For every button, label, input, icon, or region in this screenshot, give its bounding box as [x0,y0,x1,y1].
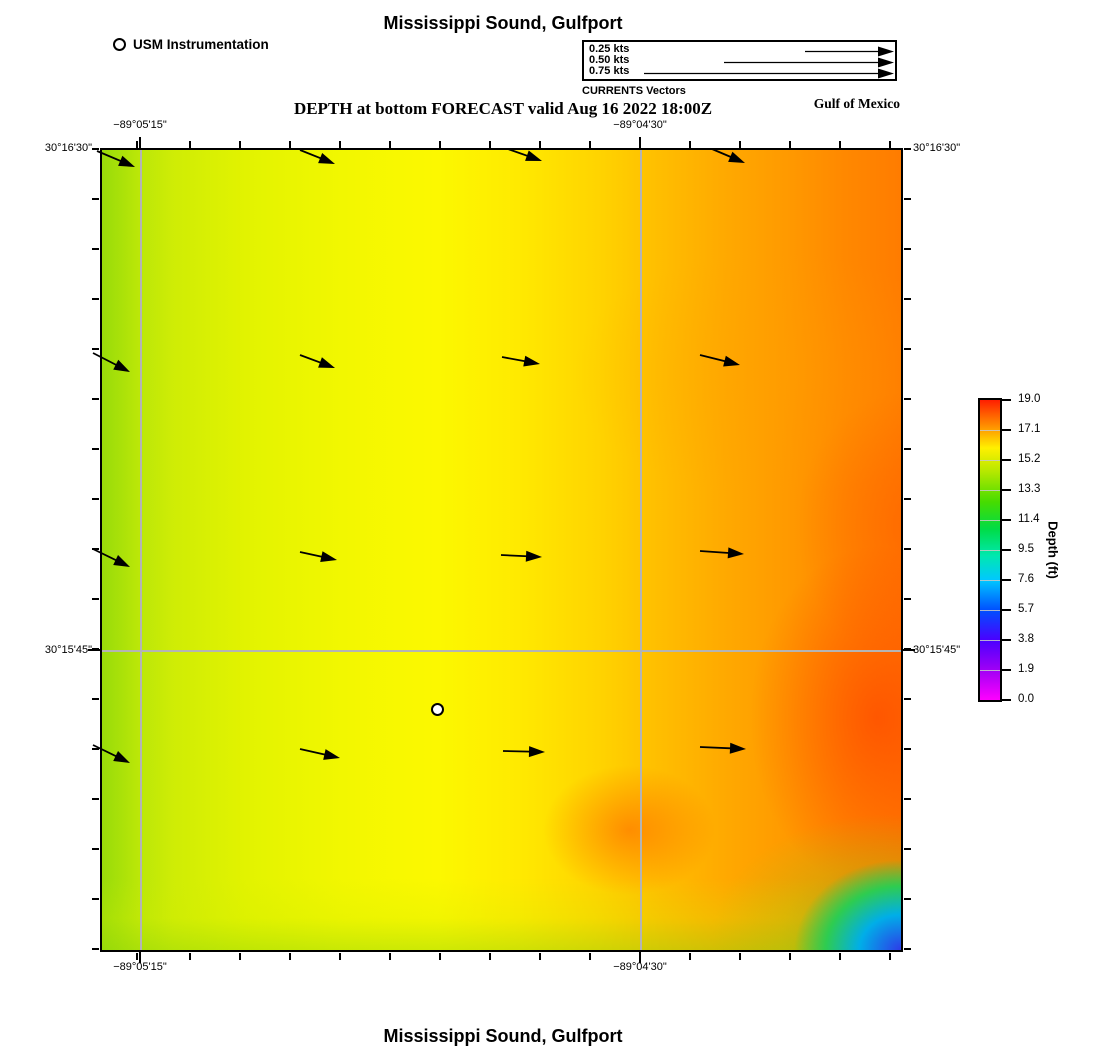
colorbar-tick [1002,639,1011,641]
colorbar-gridline [980,520,1000,521]
colorbar-tick-label: 13.3 [1018,483,1040,495]
y-axis-label-right-1: 30°16'30" [913,142,960,154]
region-label: Gulf of Mexico [760,96,900,112]
current-vector-arrow [728,152,745,163]
current-vector-arrow [730,743,746,754]
current-vector-arrow [526,551,542,562]
colorbar-tick [1002,399,1011,401]
colorbar-tick [1002,579,1011,581]
y-axis-label-right-2: 30°15'45" [913,644,960,656]
colorbar-tick-label: 3.8 [1018,633,1034,645]
current-vector-field [80,135,920,965]
vector-scale-arrow [878,58,894,68]
colorbar-gridline [980,490,1000,491]
colorbar-tick-label: 9.5 [1018,543,1034,555]
colorbar-tick-label: 5.7 [1018,603,1034,615]
x-axis-label-top-2: −89°04'30" [613,119,667,131]
vector-legend-entry-075: 0.75 kts [589,66,629,77]
colorbar-tick [1002,489,1011,491]
instrument-legend-label: USM Instrumentation [133,37,269,52]
colorbar-gridline [980,580,1000,581]
colorbar-tick-label: 17.1 [1018,423,1040,435]
current-vector-arrow [318,153,335,164]
colorbar-tick-label: 15.2 [1018,453,1040,465]
colorbar-tick-label: 1.9 [1018,663,1034,675]
colorbar-tick-label: 0.0 [1018,693,1034,705]
current-vector-arrow [118,156,135,167]
colorbar-tick [1002,609,1011,611]
current-vector-arrow [113,360,130,372]
station-circle-icon [113,38,126,51]
colorbar-tick-label: 11.4 [1018,513,1040,525]
current-vector-arrow [318,357,335,368]
colorbar-gridline [980,460,1000,461]
colorbar-tick [1002,459,1011,461]
colorbar-gridline [980,640,1000,641]
colorbar-tick [1002,549,1011,551]
vector-scale-arrow [878,47,894,57]
colorbar-tick [1002,669,1011,671]
page-title-bottom: Mississippi Sound, Gulfport [100,1026,906,1047]
current-vector-arrow [728,547,744,558]
colorbar-tick-label: 7.6 [1018,573,1034,585]
vector-scale-arrow [878,69,894,79]
colorbar-gridline [980,670,1000,671]
vector-scale-arrows [584,42,895,79]
current-vector-arrow [525,150,542,161]
vector-legend-caption: CURRENTS Vectors [582,85,686,97]
colorbar-tick [1002,519,1011,521]
currents-vector-legend: 0.25 kts 0.50 kts 0.75 kts [582,40,897,81]
colorbar-gridline [980,550,1000,551]
station-marker-icon [431,703,444,716]
current-vector-arrow [723,356,740,367]
current-vector-arrow [529,746,545,757]
forecast-plot-page: { "header": { "title": "Mississippi Soun… [0,0,1100,1050]
colorbar-gridline [980,430,1000,431]
colorbar-tick-label: 19.0 [1018,393,1040,405]
current-vector-arrow [523,356,540,367]
colorbar-gridline [980,610,1000,611]
current-vector-arrow [113,555,130,567]
x-axis-label-top-1: −89°05'15" [113,119,167,131]
colorbar-tick [1002,429,1011,431]
page-title: Mississippi Sound, Gulfport [100,13,906,34]
current-vector-arrow [320,551,337,562]
current-vector-arrow [113,751,130,763]
current-vector-arrow [323,749,340,760]
colorbar-axis-label: Depth (ft) [1046,521,1061,579]
colorbar-tick [1002,699,1011,701]
